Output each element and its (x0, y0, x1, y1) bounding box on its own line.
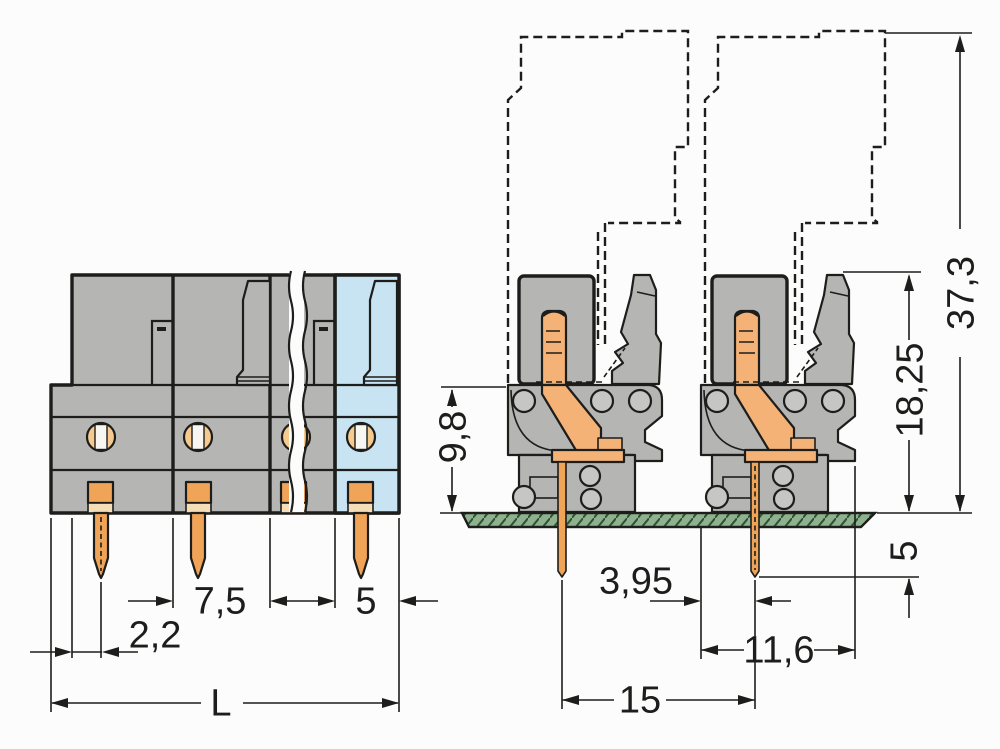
side-unit-right (701, 275, 855, 577)
side-view: 9,8 18,25 37,3 5 3,95 11,6 (432, 31, 982, 721)
dim-pin-below-board-label: 5 (883, 540, 925, 561)
dim-pitch-label: 7,5 (194, 580, 247, 622)
front-view: 7,5 5 2,2 L (30, 271, 438, 724)
side-unit (508, 275, 662, 577)
solder-pin-side (558, 462, 566, 577)
dim-pin-offset-label: 2,2 (129, 614, 182, 656)
dim-housing-depth-label: 11,6 (743, 629, 814, 671)
front-dimensions: 7,5 5 2,2 L (30, 518, 438, 724)
clamp-hole (347, 423, 375, 451)
clamp-hole (184, 423, 212, 451)
clamp-hole (87, 423, 115, 451)
solder-pins-front (94, 513, 368, 578)
spring-contact (542, 311, 566, 385)
dim-pin-to-edge-label: 3,95 (599, 560, 673, 602)
side-dimensions: 9,8 18,25 37,3 5 3,95 11,6 (432, 33, 982, 721)
pcb (462, 513, 875, 527)
drawing-canvas: 7,5 5 2,2 L (0, 0, 1000, 749)
dim-contact-spacing-label: 15 (619, 679, 661, 721)
dim-height-above-board-label: 18,25 (889, 342, 931, 437)
dim-end-width-label: 5 (355, 580, 376, 622)
dim-housing-height-label: 9,8 (432, 411, 474, 464)
connector-technical-drawing: 7,5 5 2,2 L (0, 0, 1000, 749)
dim-total-length-label: L (210, 682, 231, 724)
dim-overall-height-label: 37,3 (940, 256, 982, 330)
